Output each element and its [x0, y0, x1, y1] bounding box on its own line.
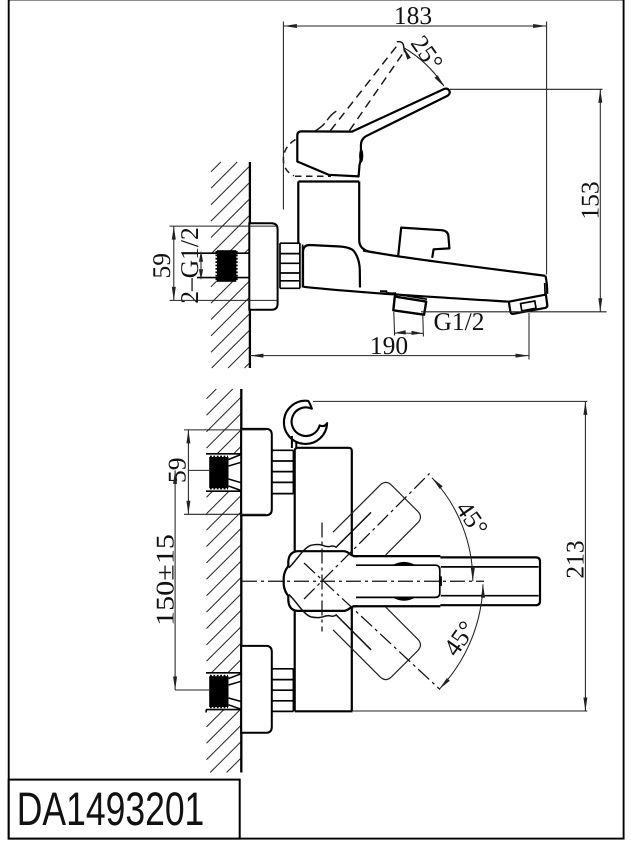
svg-text:190: 190	[370, 331, 408, 360]
svg-text:59: 59	[147, 253, 176, 279]
svg-text:183: 183	[394, 1, 432, 30]
svg-text:G1/2: G1/2	[434, 307, 485, 336]
svg-text:213: 213	[560, 540, 589, 578]
svg-text:59: 59	[162, 458, 191, 484]
svg-text:DA1493201: DA1493201	[17, 782, 205, 835]
svg-text:150±15: 150±15	[151, 534, 180, 626]
svg-text:153: 153	[575, 181, 604, 219]
svg-text:2–G1/2: 2–G1/2	[175, 227, 204, 304]
